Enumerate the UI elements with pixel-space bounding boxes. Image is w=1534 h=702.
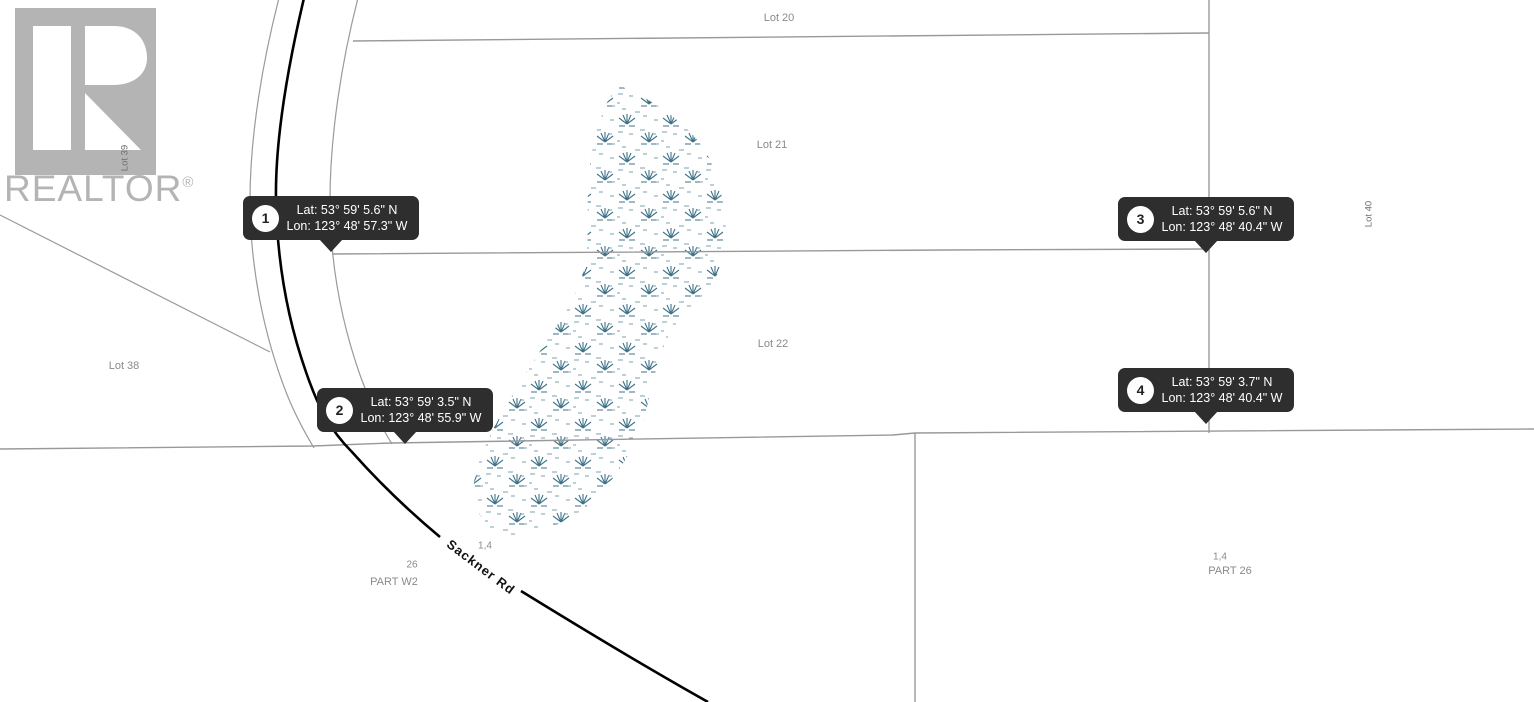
left-fraction-label: 1,4 [478,541,492,552]
pin-number-badge: 2 [326,397,353,424]
pin-coordinates: Lat: 53° 59' 3.7" N Lon: 123° 48' 40.4" … [1154,374,1294,407]
registered-symbol: ® [182,174,194,191]
map-pin-2[interactable]: 2 Lat: 53° 59' 3.5" N Lon: 123° 48' 55.9… [317,388,493,432]
pin-coordinates: Lat: 53° 59' 5.6" N Lon: 123° 48' 57.3" … [279,202,419,235]
map-pin-4[interactable]: 4 Lat: 53° 59' 3.7" N Lon: 123° 48' 40.4… [1118,368,1294,412]
pin-lat: Lat: 53° 59' 3.5" N [353,394,489,411]
pin-lon: Lon: 123° 48' 40.4" W [1154,219,1290,236]
pin-lat: Lat: 53° 59' 5.6" N [279,202,415,219]
parcel-map: REALTOR® Lot 20 Lot 21 Lot 22 Lot 38 Lot… [0,0,1534,702]
map-pin-1[interactable]: 1 Lat: 53° 59' 5.6" N Lon: 123° 48' 57.3… [243,196,419,240]
road-centerline-upper [276,0,440,537]
lot-39-label: Lot 39 [120,145,131,171]
boundary-top [353,33,1209,41]
left-number-label: 26 [406,560,417,571]
lot-21-label: Lot 21 [757,139,788,151]
map-linework [0,0,1534,702]
part-26-label: PART 26 [1208,565,1251,577]
realtor-brand-text: REALTOR [4,168,182,209]
map-pin-3[interactable]: 3 Lat: 53° 59' 5.6" N Lon: 123° 48' 40.4… [1118,197,1294,241]
pin-lat: Lat: 53° 59' 3.7" N [1154,374,1290,391]
right-fraction-label: 1,4 [1213,552,1227,563]
pin-lat: Lat: 53° 59' 5.6" N [1154,203,1290,220]
boundary-middle [332,249,1209,254]
pin-lon: Lon: 123° 48' 40.4" W [1154,390,1290,407]
pin-number-badge: 3 [1127,206,1154,233]
lot-40-label: Lot 40 [1364,201,1375,227]
road-centerline-lower [521,591,708,702]
lot-20-label: Lot 20 [764,12,795,24]
pin-lon: Lon: 123° 48' 55.9" W [353,410,489,427]
realtor-wordmark: REALTOR® [4,168,194,210]
boundary-bottom [0,429,1534,449]
pin-coordinates: Lat: 53° 59' 5.6" N Lon: 123° 48' 40.4" … [1154,203,1294,236]
pin-number-badge: 4 [1127,377,1154,404]
boundary-diagonal-west [0,215,270,352]
realtor-watermark: REALTOR® [0,0,230,215]
pin-number-badge: 1 [252,205,279,232]
pin-lon: Lon: 123° 48' 57.3" W [279,218,415,235]
lot-38-label: Lot 38 [109,360,140,372]
part-w2-label: PART W2 [370,576,418,588]
pin-coordinates: Lat: 53° 59' 3.5" N Lon: 123° 48' 55.9" … [353,394,493,427]
wetland-area [474,86,726,536]
lot-22-label: Lot 22 [758,338,789,350]
